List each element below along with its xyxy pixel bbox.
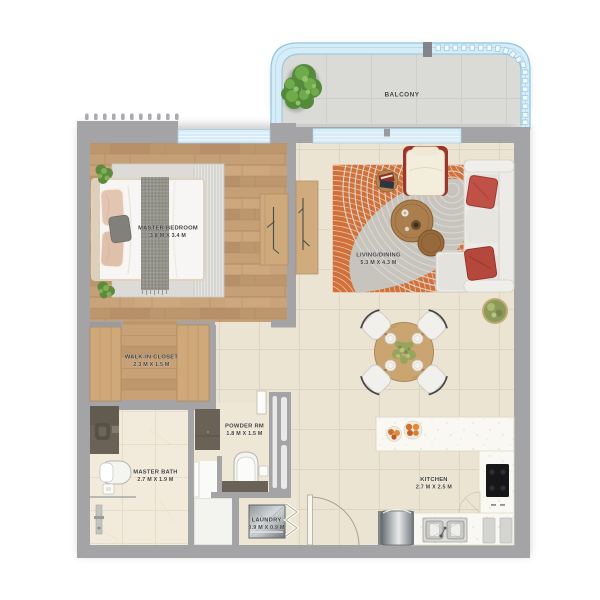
svg-text:0.9 M X 0.9 M: 0.9 M X 0.9 M (248, 525, 285, 531)
svg-text:LAUNDRY: LAUNDRY (252, 518, 282, 524)
svg-text:LIVING/DINING: LIVING/DINING (356, 253, 401, 259)
svg-text:BALCONY: BALCONY (384, 92, 419, 99)
svg-text:3.8 M X 3.4 M: 3.8 M X 3.4 M (150, 233, 187, 239)
svg-text:5.3 M X 4.3 M: 5.3 M X 4.3 M (360, 260, 397, 266)
svg-text:2.3 M X 1.5 M: 2.3 M X 1.5 M (133, 362, 170, 368)
svg-text:MASTER BEDROOM: MASTER BEDROOM (138, 226, 198, 232)
svg-text:KITCHEN: KITCHEN (420, 477, 448, 483)
svg-text:MASTER BATH: MASTER BATH (133, 470, 178, 476)
svg-text:WALK-IN CLOSET: WALK-IN CLOSET (125, 355, 179, 361)
svg-text:2.7 M X 2.5 M: 2.7 M X 2.5 M (416, 484, 453, 490)
svg-text:2.7 M X 1.9 M: 2.7 M X 1.9 M (137, 477, 174, 483)
svg-text:POWDER RM: POWDER RM (225, 424, 264, 430)
svg-text:1.8 M X 1.5 M: 1.8 M X 1.5 M (226, 431, 263, 437)
